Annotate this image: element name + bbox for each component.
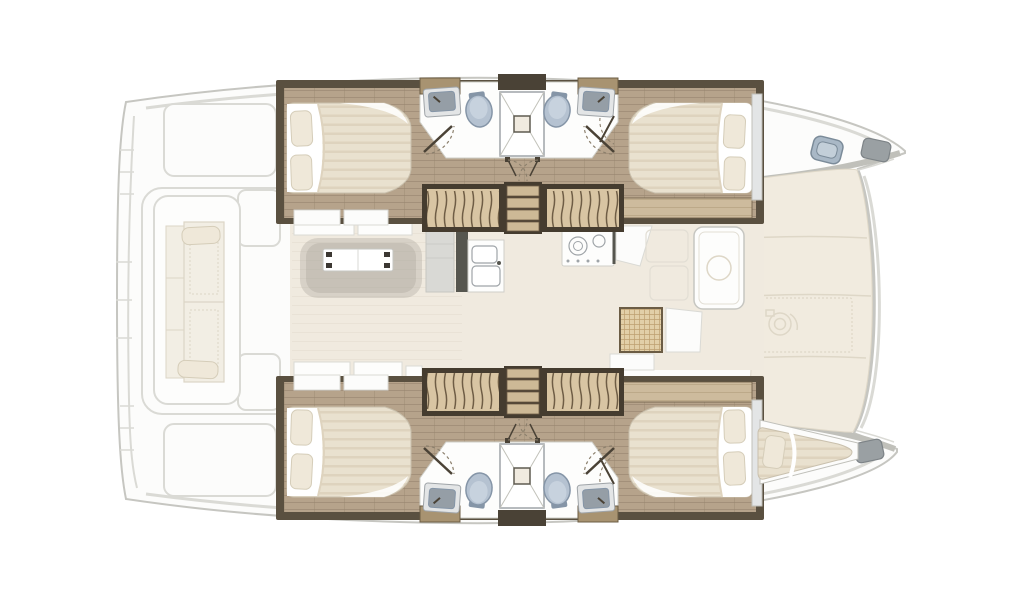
stairs-icon xyxy=(547,189,619,227)
sink-basin xyxy=(472,246,497,263)
foredeck xyxy=(748,169,872,432)
table-foot xyxy=(326,252,332,257)
forward-door-panel xyxy=(694,227,744,309)
washbasin-icon xyxy=(423,87,461,117)
bench-pillow xyxy=(178,360,219,379)
fridge-column xyxy=(426,228,454,292)
galley-sink-icon xyxy=(468,240,504,292)
cockpit-bench xyxy=(154,196,240,404)
white-deck-panel xyxy=(666,308,702,352)
hull-cabinet-row xyxy=(294,210,340,225)
hatch-grid-icon xyxy=(620,308,662,352)
starboard-hull-interior xyxy=(276,366,764,526)
saloon xyxy=(290,221,764,390)
landing-plank xyxy=(507,186,539,196)
catamaran-floor-plan xyxy=(0,0,1024,600)
cockpit-locker xyxy=(164,424,276,496)
pillow-icon xyxy=(723,157,745,191)
foredeck-surface xyxy=(748,169,872,432)
aft-double-berth xyxy=(287,103,411,193)
floor-plan-svg xyxy=(0,0,1024,600)
basin-bowl xyxy=(428,91,455,112)
shower-icon xyxy=(500,92,544,156)
companionway-stairs xyxy=(422,182,624,234)
table-foot xyxy=(326,263,332,268)
forward-step-locker xyxy=(618,198,752,218)
cockpit-locker xyxy=(238,190,280,246)
forward-door xyxy=(694,227,744,309)
washbasin-icon xyxy=(577,87,615,117)
shower-header xyxy=(498,74,546,90)
pillow-icon xyxy=(723,114,746,148)
landing-plank xyxy=(507,210,539,220)
bench-backrest xyxy=(166,226,184,378)
stairs-icon xyxy=(427,189,499,227)
sink-faucet xyxy=(497,261,501,265)
landing-plank xyxy=(507,222,539,231)
white-deck-panel xyxy=(610,354,654,370)
table-foot xyxy=(384,263,390,268)
sink-basin xyxy=(472,266,500,286)
cockpit-locker xyxy=(164,104,276,176)
pillow-icon xyxy=(290,110,313,146)
bench-pillow xyxy=(182,226,221,245)
cockpit-locker xyxy=(238,354,280,410)
table-foot xyxy=(384,252,390,257)
forward-bulkhead xyxy=(752,94,762,200)
pillow-icon xyxy=(762,435,786,469)
saloon-table xyxy=(323,249,393,271)
basin-bowl xyxy=(582,91,609,112)
pillow-icon xyxy=(290,155,312,191)
hull-cabinet-row xyxy=(344,210,388,225)
landing-plank xyxy=(507,198,539,208)
port-hull-interior xyxy=(276,74,764,234)
shower-drain xyxy=(514,116,530,132)
galley-dark-counter xyxy=(456,230,468,292)
forward-double-berth xyxy=(629,103,752,193)
